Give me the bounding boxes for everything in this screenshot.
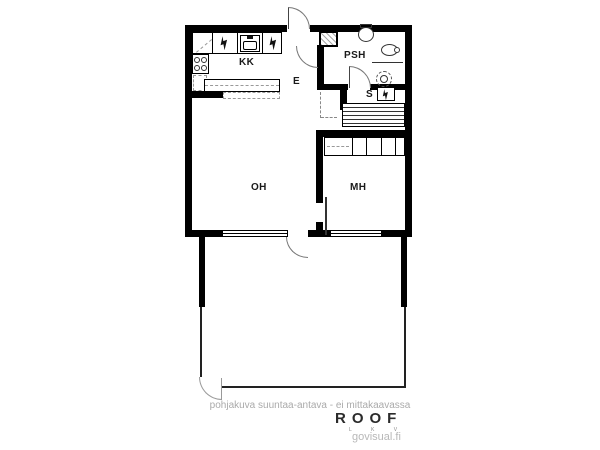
counter-dashed (223, 92, 280, 99)
sauna-door-swing (349, 66, 371, 88)
peninsula-dashed-line (205, 85, 279, 86)
balcony-wall-left (200, 307, 202, 377)
window (222, 230, 288, 237)
wardrobe-divider (381, 137, 382, 156)
wall-kk-stub (192, 91, 223, 98)
opening-dashed-line (321, 117, 337, 119)
floor-plan-canvas: KK E PSH S OH MH pohjakuva suuntaa-antav… (0, 0, 600, 450)
kitchen-sink-basin (243, 41, 257, 50)
toilet-icon (358, 27, 374, 42)
hall-door-swing (296, 46, 318, 68)
wall-stub (316, 222, 323, 231)
disclaimer-text: pohjakuva suuntaa-antava - ei mittakaava… (150, 400, 470, 411)
wardrobe-divider (366, 137, 367, 156)
outer-wall-right (405, 25, 412, 237)
counter-divider (262, 32, 263, 54)
sauna-benches (342, 103, 405, 127)
room-label-e: E (293, 76, 300, 87)
wardrobe-dashed-line (327, 146, 349, 147)
balcony-wall-bottom (222, 386, 404, 388)
balcony-wall-left-thick (199, 237, 205, 307)
outer-wall-left (185, 25, 192, 237)
opening-dashed-line (320, 92, 322, 118)
sliding-door (325, 197, 327, 235)
balcony-door-swing (286, 237, 308, 258)
room-label-kk: KK (239, 57, 254, 68)
shower-drain-icon (380, 75, 388, 83)
counter-divider (212, 32, 213, 54)
balcony-opening-leaf (221, 378, 222, 400)
site-url: govisual.fi (352, 431, 401, 443)
wardrobe-divider (352, 137, 353, 156)
wall-s-mh (317, 130, 405, 137)
bottom-wall-segment (192, 230, 222, 237)
bottom-wall-segment (382, 230, 405, 237)
burner-icon (194, 65, 200, 71)
room-label-oh: OH (251, 182, 267, 193)
room-label-psh: PSH (344, 50, 366, 61)
wardrobe-divider (395, 137, 396, 156)
washbasin-faucet-icon (394, 47, 400, 53)
outer-wall-top-left (185, 25, 287, 32)
counter-divider (237, 32, 238, 54)
kitchen-faucet-icon (247, 36, 253, 39)
balcony-opening-swing (199, 377, 222, 400)
burner-icon (194, 57, 200, 63)
roof-logo: ROOF (335, 410, 402, 427)
room-label-mh: MH (350, 182, 366, 193)
duct-shaft (319, 31, 338, 47)
balcony-wall-right-thick (401, 237, 407, 307)
balcony-wall-right (404, 307, 406, 388)
room-label-s: S (366, 89, 373, 100)
burner-icon (201, 57, 207, 63)
washbasin-counter-line (372, 62, 403, 63)
window (330, 230, 382, 237)
wall-oh-mh (316, 130, 323, 203)
burner-icon (201, 65, 207, 71)
entrance-door-swing (288, 7, 310, 29)
